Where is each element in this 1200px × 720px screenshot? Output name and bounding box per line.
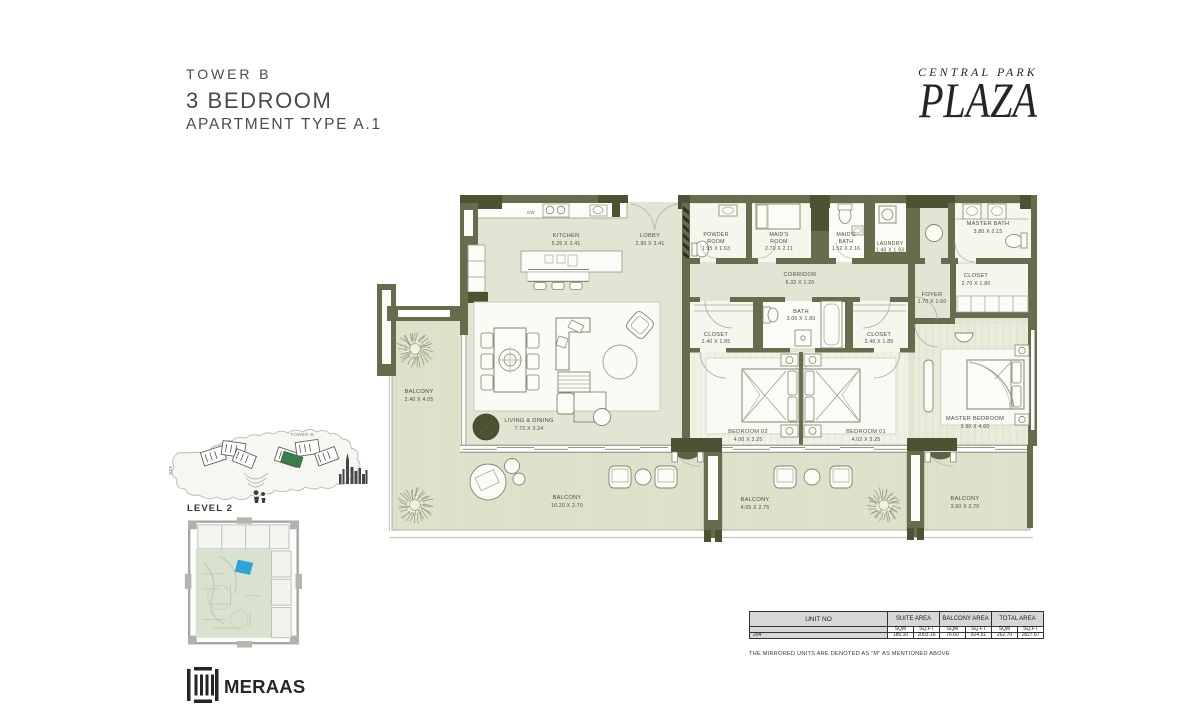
svg-text:1.40 X 1.93: 1.40 X 1.93: [876, 248, 904, 254]
svg-text:3.80 X 2.15: 3.80 X 2.15: [974, 229, 1003, 235]
svg-text:2.40 X 4.05: 2.40 X 4.05: [405, 397, 434, 403]
svg-text:BALCONY: BALCONY: [405, 389, 434, 395]
svg-text:ROOM: ROOM: [707, 239, 724, 245]
svg-text:ROOM: ROOM: [770, 239, 787, 245]
svg-text:LAUNDRY: LAUNDRY: [877, 241, 904, 247]
svg-text:LIVING & DINING: LIVING & DINING: [504, 418, 553, 424]
svg-text:TOWER B: TOWER B: [290, 432, 313, 437]
svg-text:1.52 X 2.16: 1.52 X 2.16: [832, 246, 860, 252]
svg-text:BEDROOM 01: BEDROOM 01: [846, 429, 886, 435]
svg-text:MAID'S: MAID'S: [836, 232, 856, 238]
svg-text:BALCONY: BALCONY: [951, 496, 980, 502]
svg-text:MAID'S: MAID'S: [769, 232, 789, 238]
svg-text:FOYER: FOYER: [922, 292, 943, 298]
svg-text:3.90 X 4.60: 3.90 X 4.60: [961, 424, 990, 430]
svg-text:CLOSET: CLOSET: [704, 332, 729, 338]
svg-text:4.05 X 2.75: 4.05 X 2.75: [741, 505, 770, 511]
svg-text:BALCONY: BALCONY: [741, 497, 770, 503]
svg-text:KITCHEN: KITCHEN: [553, 233, 580, 239]
svg-text:2.90 X 3.41: 2.90 X 3.41: [636, 241, 665, 247]
svg-text:7.72 X 3.34: 7.72 X 3.34: [515, 426, 544, 432]
svg-text:CLOSET: CLOSET: [964, 273, 989, 279]
svg-text:DW: DW: [527, 210, 534, 215]
svg-text:1.95 X 1.63: 1.95 X 1.63: [702, 246, 730, 252]
svg-text:MASTER BATH: MASTER BATH: [967, 221, 1010, 227]
svg-text:CORRIDOR: CORRIDOR: [784, 272, 817, 278]
svg-text:S55: S55: [168, 465, 173, 475]
svg-text:BATH: BATH: [793, 309, 809, 315]
svg-text:MASTER BEDROOM: MASTER BEDROOM: [946, 416, 1004, 422]
svg-text:2.70 X 2.11: 2.70 X 2.11: [765, 246, 793, 252]
svg-text:MERAAS: MERAAS: [224, 676, 305, 697]
svg-text:2.40 X 1.85: 2.40 X 1.85: [702, 339, 731, 345]
svg-text:2.40 X 1.85: 2.40 X 1.85: [865, 339, 894, 345]
svg-text:16.20 X 2.70: 16.20 X 2.70: [551, 503, 583, 509]
svg-text:5.26 X 3.41: 5.26 X 3.41: [552, 241, 581, 247]
svg-text:4.02 X 3.25: 4.02 X 3.25: [852, 437, 881, 443]
svg-text:BATH: BATH: [839, 239, 854, 245]
svg-text:3.60 X 2.70: 3.60 X 2.70: [951, 504, 980, 510]
svg-text:BALCONY: BALCONY: [553, 495, 582, 501]
svg-text:BEDROOM 02: BEDROOM 02: [728, 429, 768, 435]
svg-text:6.32 X 1.20: 6.32 X 1.20: [786, 280, 815, 286]
svg-text:4.00 X 3.25: 4.00 X 3.25: [734, 437, 763, 443]
svg-text:2.70 X 1.80: 2.70 X 1.80: [962, 281, 991, 287]
svg-text:3.05 X 1.80: 3.05 X 1.80: [787, 316, 816, 322]
svg-text:CLOSET: CLOSET: [867, 332, 892, 338]
svg-text:LOBBY: LOBBY: [640, 233, 660, 239]
svg-text:1.70 X 1.60: 1.70 X 1.60: [918, 299, 947, 305]
svg-text:POWDER: POWDER: [703, 232, 728, 238]
